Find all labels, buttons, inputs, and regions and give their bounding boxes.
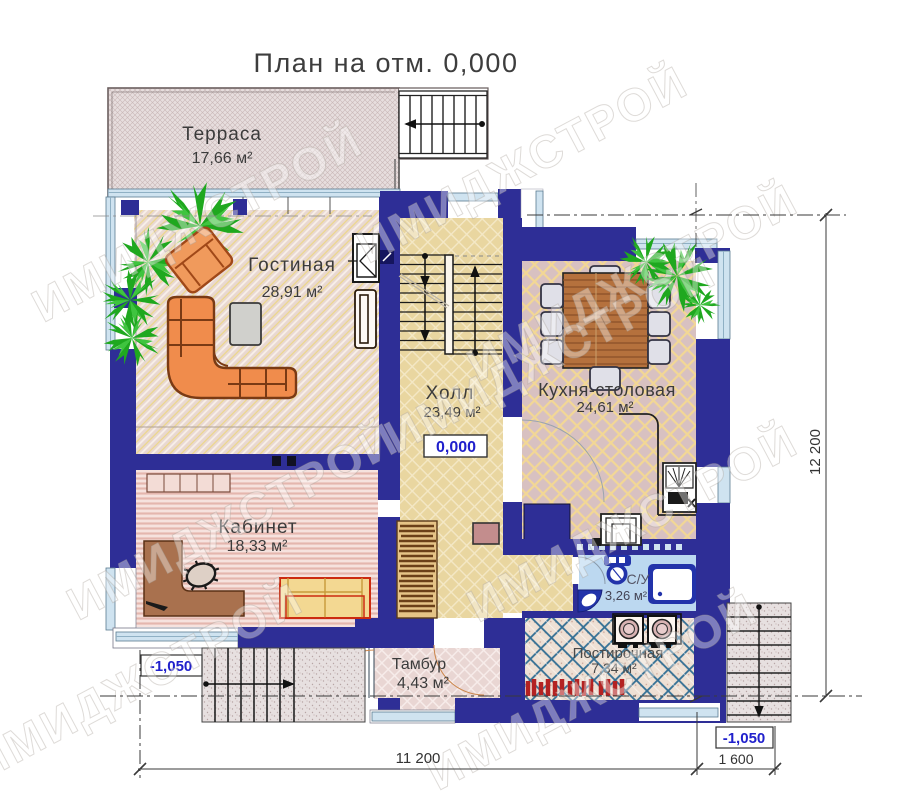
- svg-text:С/У: С/У: [627, 571, 650, 587]
- svg-text:4,43 м²: 4,43 м²: [397, 675, 450, 692]
- svg-text:0,000: 0,000: [436, 439, 476, 456]
- svg-text:Кухня-столовая: Кухня-столовая: [538, 380, 676, 400]
- svg-text:28,91 м²: 28,91 м²: [262, 284, 323, 301]
- svg-text:Тамбур: Тамбур: [392, 656, 446, 673]
- svg-text:3,26 м²: 3,26 м²: [605, 588, 648, 603]
- svg-text:17,66 м²: 17,66 м²: [192, 150, 253, 167]
- svg-text:Гостиная: Гостиная: [248, 255, 336, 276]
- svg-text:Терраса: Терраса: [182, 124, 262, 145]
- svg-text:План на отм. 0,000: План на отм. 0,000: [254, 48, 519, 78]
- svg-text:12 200: 12 200: [807, 429, 824, 475]
- svg-text:24,61 м²: 24,61 м²: [576, 399, 633, 416]
- svg-text:-1,050: -1,050: [723, 730, 766, 747]
- svg-text:1 600: 1 600: [718, 751, 753, 767]
- svg-text:11 200: 11 200: [396, 750, 441, 767]
